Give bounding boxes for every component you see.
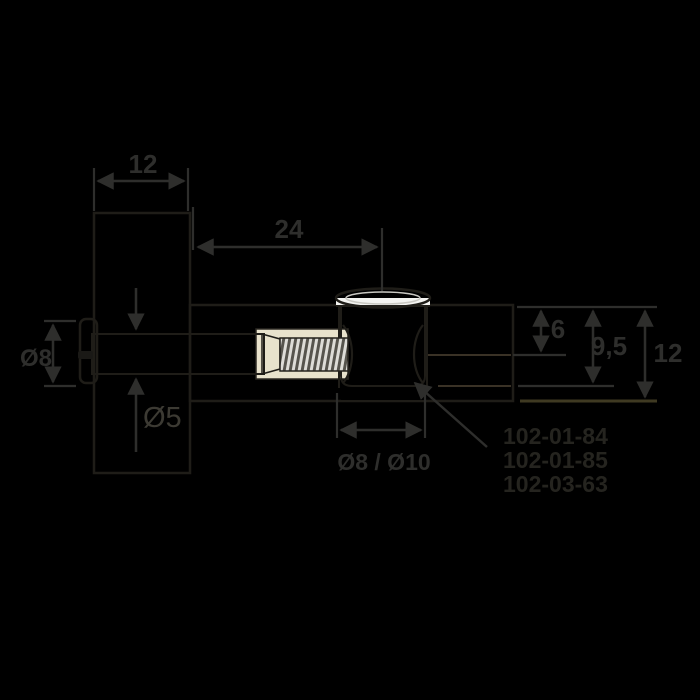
dim-label-panel-width: 12 [129, 149, 158, 179]
dim-label-hole-depth: 9,5 [591, 331, 627, 361]
bolt-thread [280, 338, 348, 371]
dim-label-shaft-diameter: Ø5 [143, 402, 182, 434]
dim-label-head-diameter: Ø8 [20, 345, 52, 372]
dim-label-axis-depth: 6 [551, 314, 565, 344]
dim-label-shelf-thickness: 12 [654, 338, 683, 368]
technical-drawing: 12 24 Ø8 Ø5 6 9,5 12 Ø8 / Ø10 102-01-84 … [0, 0, 700, 700]
part-number-2: 102-01-85 [503, 447, 608, 473]
dim-label-cam-hole-diameter: Ø8 / Ø10 [337, 449, 430, 475]
cam-hole-bottom-opening [341, 387, 425, 400]
bolt-head-slot [78, 351, 93, 359]
part-number-3: 102-03-63 [503, 471, 608, 497]
dim-label-bolt-length: 24 [275, 214, 304, 244]
part-number-1: 102-01-84 [503, 423, 608, 449]
drawing-canvas: 12 24 Ø8 Ø5 6 9,5 12 Ø8 / Ø10 102-01-84 … [0, 0, 700, 700]
